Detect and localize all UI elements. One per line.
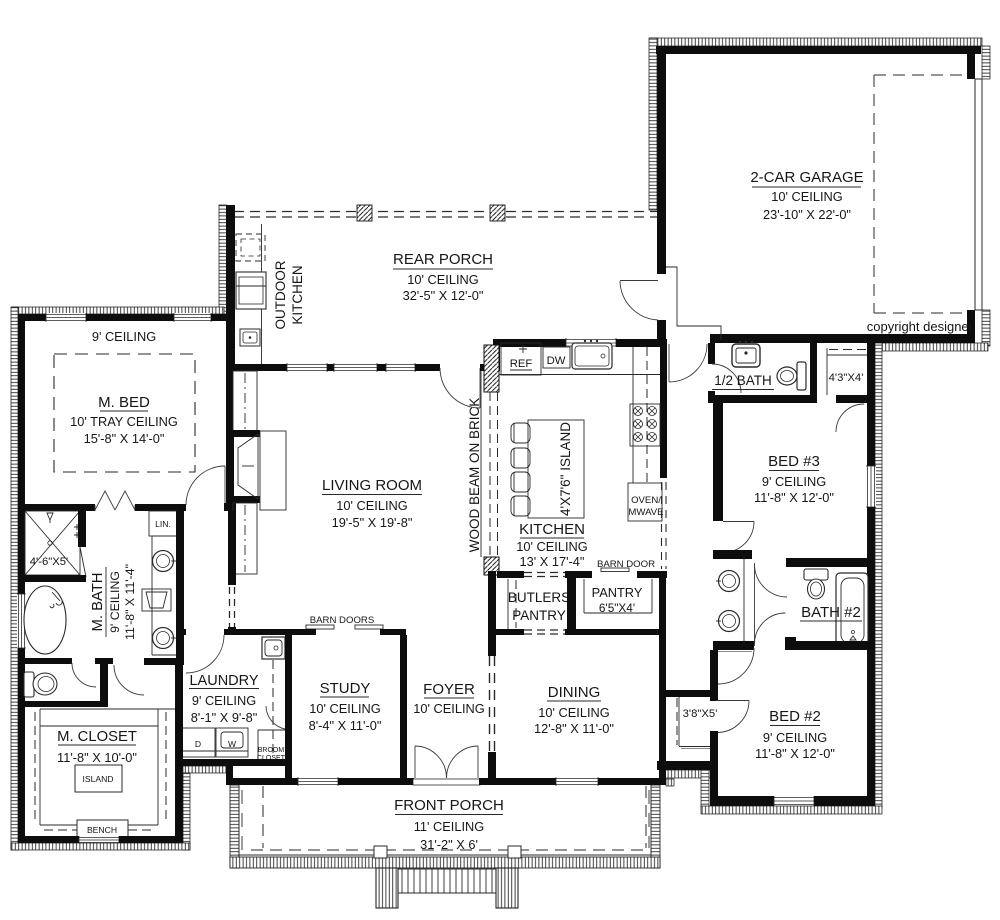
svg-text:LAUNDRY: LAUNDRY bbox=[189, 673, 258, 689]
svg-text:M. BATH: M. BATH bbox=[90, 573, 106, 632]
svg-text:23'-10" X 22'-0": 23'-10" X 22'-0" bbox=[763, 207, 851, 222]
svg-text:BED #3: BED #3 bbox=[768, 453, 820, 470]
svg-text:9' CEILING: 9' CEILING bbox=[192, 693, 256, 708]
svg-text:11'-8" X 11'-4": 11'-8" X 11'-4" bbox=[123, 564, 137, 640]
svg-text:BATH #2: BATH #2 bbox=[801, 604, 861, 621]
svg-text:10' CEILING: 10' CEILING bbox=[538, 705, 609, 720]
svg-text:W: W bbox=[228, 739, 237, 749]
svg-text:8'-1" X 9'-8": 8'-1" X 9'-8" bbox=[191, 710, 258, 725]
svg-text:KITCHEN: KITCHEN bbox=[290, 265, 305, 324]
svg-text:15'-8" X 14'-0": 15'-8" X 14'-0" bbox=[84, 431, 165, 446]
svg-text:11'-8" X 12'-0": 11'-8" X 12'-0" bbox=[754, 490, 834, 505]
svg-text:REAR PORCH: REAR PORCH bbox=[393, 251, 493, 268]
svg-text:ISLAND: ISLAND bbox=[82, 774, 113, 784]
svg-text:9' CEILING: 9' CEILING bbox=[108, 571, 122, 633]
svg-text:LIVING ROOM: LIVING ROOM bbox=[322, 477, 422, 494]
svg-text:M. CLOSET: M. CLOSET bbox=[57, 729, 137, 745]
svg-text:PANTRY: PANTRY bbox=[592, 585, 643, 600]
svg-text:10' CEILING: 10' CEILING bbox=[413, 701, 484, 716]
svg-text:6'5"X4': 6'5"X4' bbox=[599, 601, 635, 615]
svg-text:BROOM: BROOM bbox=[258, 747, 285, 754]
svg-text:9' CEILING: 9' CEILING bbox=[92, 329, 156, 344]
svg-text:copyright designer: copyright designer bbox=[867, 319, 974, 334]
svg-text:10' CEILING: 10' CEILING bbox=[336, 498, 407, 513]
svg-text:WOOD BEAM ON BRICK: WOOD BEAM ON BRICK bbox=[467, 398, 482, 553]
svg-text:FOYER: FOYER bbox=[423, 681, 475, 698]
svg-text:9' CEILING: 9' CEILING bbox=[763, 730, 827, 745]
svg-text:11' CEILING: 11' CEILING bbox=[414, 819, 484, 834]
svg-text:KITCHEN: KITCHEN bbox=[519, 521, 585, 538]
svg-text:REF: REF bbox=[510, 358, 533, 370]
svg-text:PANTRY: PANTRY bbox=[512, 608, 566, 623]
svg-text:BUTLERS: BUTLERS bbox=[508, 590, 570, 605]
svg-text:BARN DOORS: BARN DOORS bbox=[310, 615, 375, 626]
svg-text:12'-8" X 11'-0": 12'-8" X 11'-0" bbox=[534, 721, 614, 736]
svg-text:OVEN/: OVEN/ bbox=[631, 495, 661, 506]
svg-text:3'8"X5': 3'8"X5' bbox=[683, 708, 718, 720]
svg-text:1/2 BATH: 1/2 BATH bbox=[714, 373, 772, 388]
svg-text:32'-5" X 12'-0": 32'-5" X 12'-0" bbox=[403, 288, 484, 303]
svg-text:BED #2: BED #2 bbox=[769, 708, 821, 725]
svg-text:10' CEILING: 10' CEILING bbox=[407, 272, 478, 287]
svg-text:MWAVE: MWAVE bbox=[628, 507, 663, 518]
svg-text:4'3"X4': 4'3"X4' bbox=[829, 372, 864, 384]
svg-text:10' CEILING: 10' CEILING bbox=[309, 701, 380, 716]
svg-text:D: D bbox=[195, 739, 201, 749]
svg-text:11'-8" X 10'-0": 11'-8" X 10'-0" bbox=[57, 750, 137, 765]
svg-text:31'-2" X 6': 31'-2" X 6' bbox=[420, 837, 478, 852]
svg-text:9' CEILING: 9' CEILING bbox=[762, 474, 826, 489]
svg-text:BENCH: BENCH bbox=[87, 825, 117, 835]
svg-text:19'-5" X 19'-8": 19'-5" X 19'-8" bbox=[332, 515, 413, 530]
svg-text:2-CAR GARAGE: 2-CAR GARAGE bbox=[750, 169, 863, 186]
svg-text:DW: DW bbox=[547, 355, 566, 367]
svg-text:13' X 17'-4": 13' X 17'-4" bbox=[520, 554, 585, 569]
svg-text:4'-6"X5': 4'-6"X5' bbox=[30, 556, 68, 568]
svg-text:8'-4" X 11'-0": 8'-4" X 11'-0" bbox=[309, 718, 382, 733]
svg-text:10' CEILING: 10' CEILING bbox=[771, 189, 842, 204]
svg-text:STUDY: STUDY bbox=[320, 680, 371, 697]
svg-text:FRONT PORCH: FRONT PORCH bbox=[394, 797, 504, 814]
svg-text:M. BED: M. BED bbox=[98, 394, 150, 411]
svg-text:10' TRAY CEILING: 10' TRAY CEILING bbox=[70, 414, 178, 429]
svg-text:10' CEILING: 10' CEILING bbox=[516, 539, 587, 554]
svg-text:LIN.: LIN. bbox=[155, 519, 171, 529]
svg-text:11'-8" X 12'-0": 11'-8" X 12'-0" bbox=[755, 746, 835, 761]
svg-text:DINING: DINING bbox=[548, 684, 601, 701]
svg-text:OUTDOOR: OUTDOOR bbox=[273, 260, 288, 329]
svg-text:4'X7'6" ISLAND: 4'X7'6" ISLAND bbox=[558, 422, 573, 516]
